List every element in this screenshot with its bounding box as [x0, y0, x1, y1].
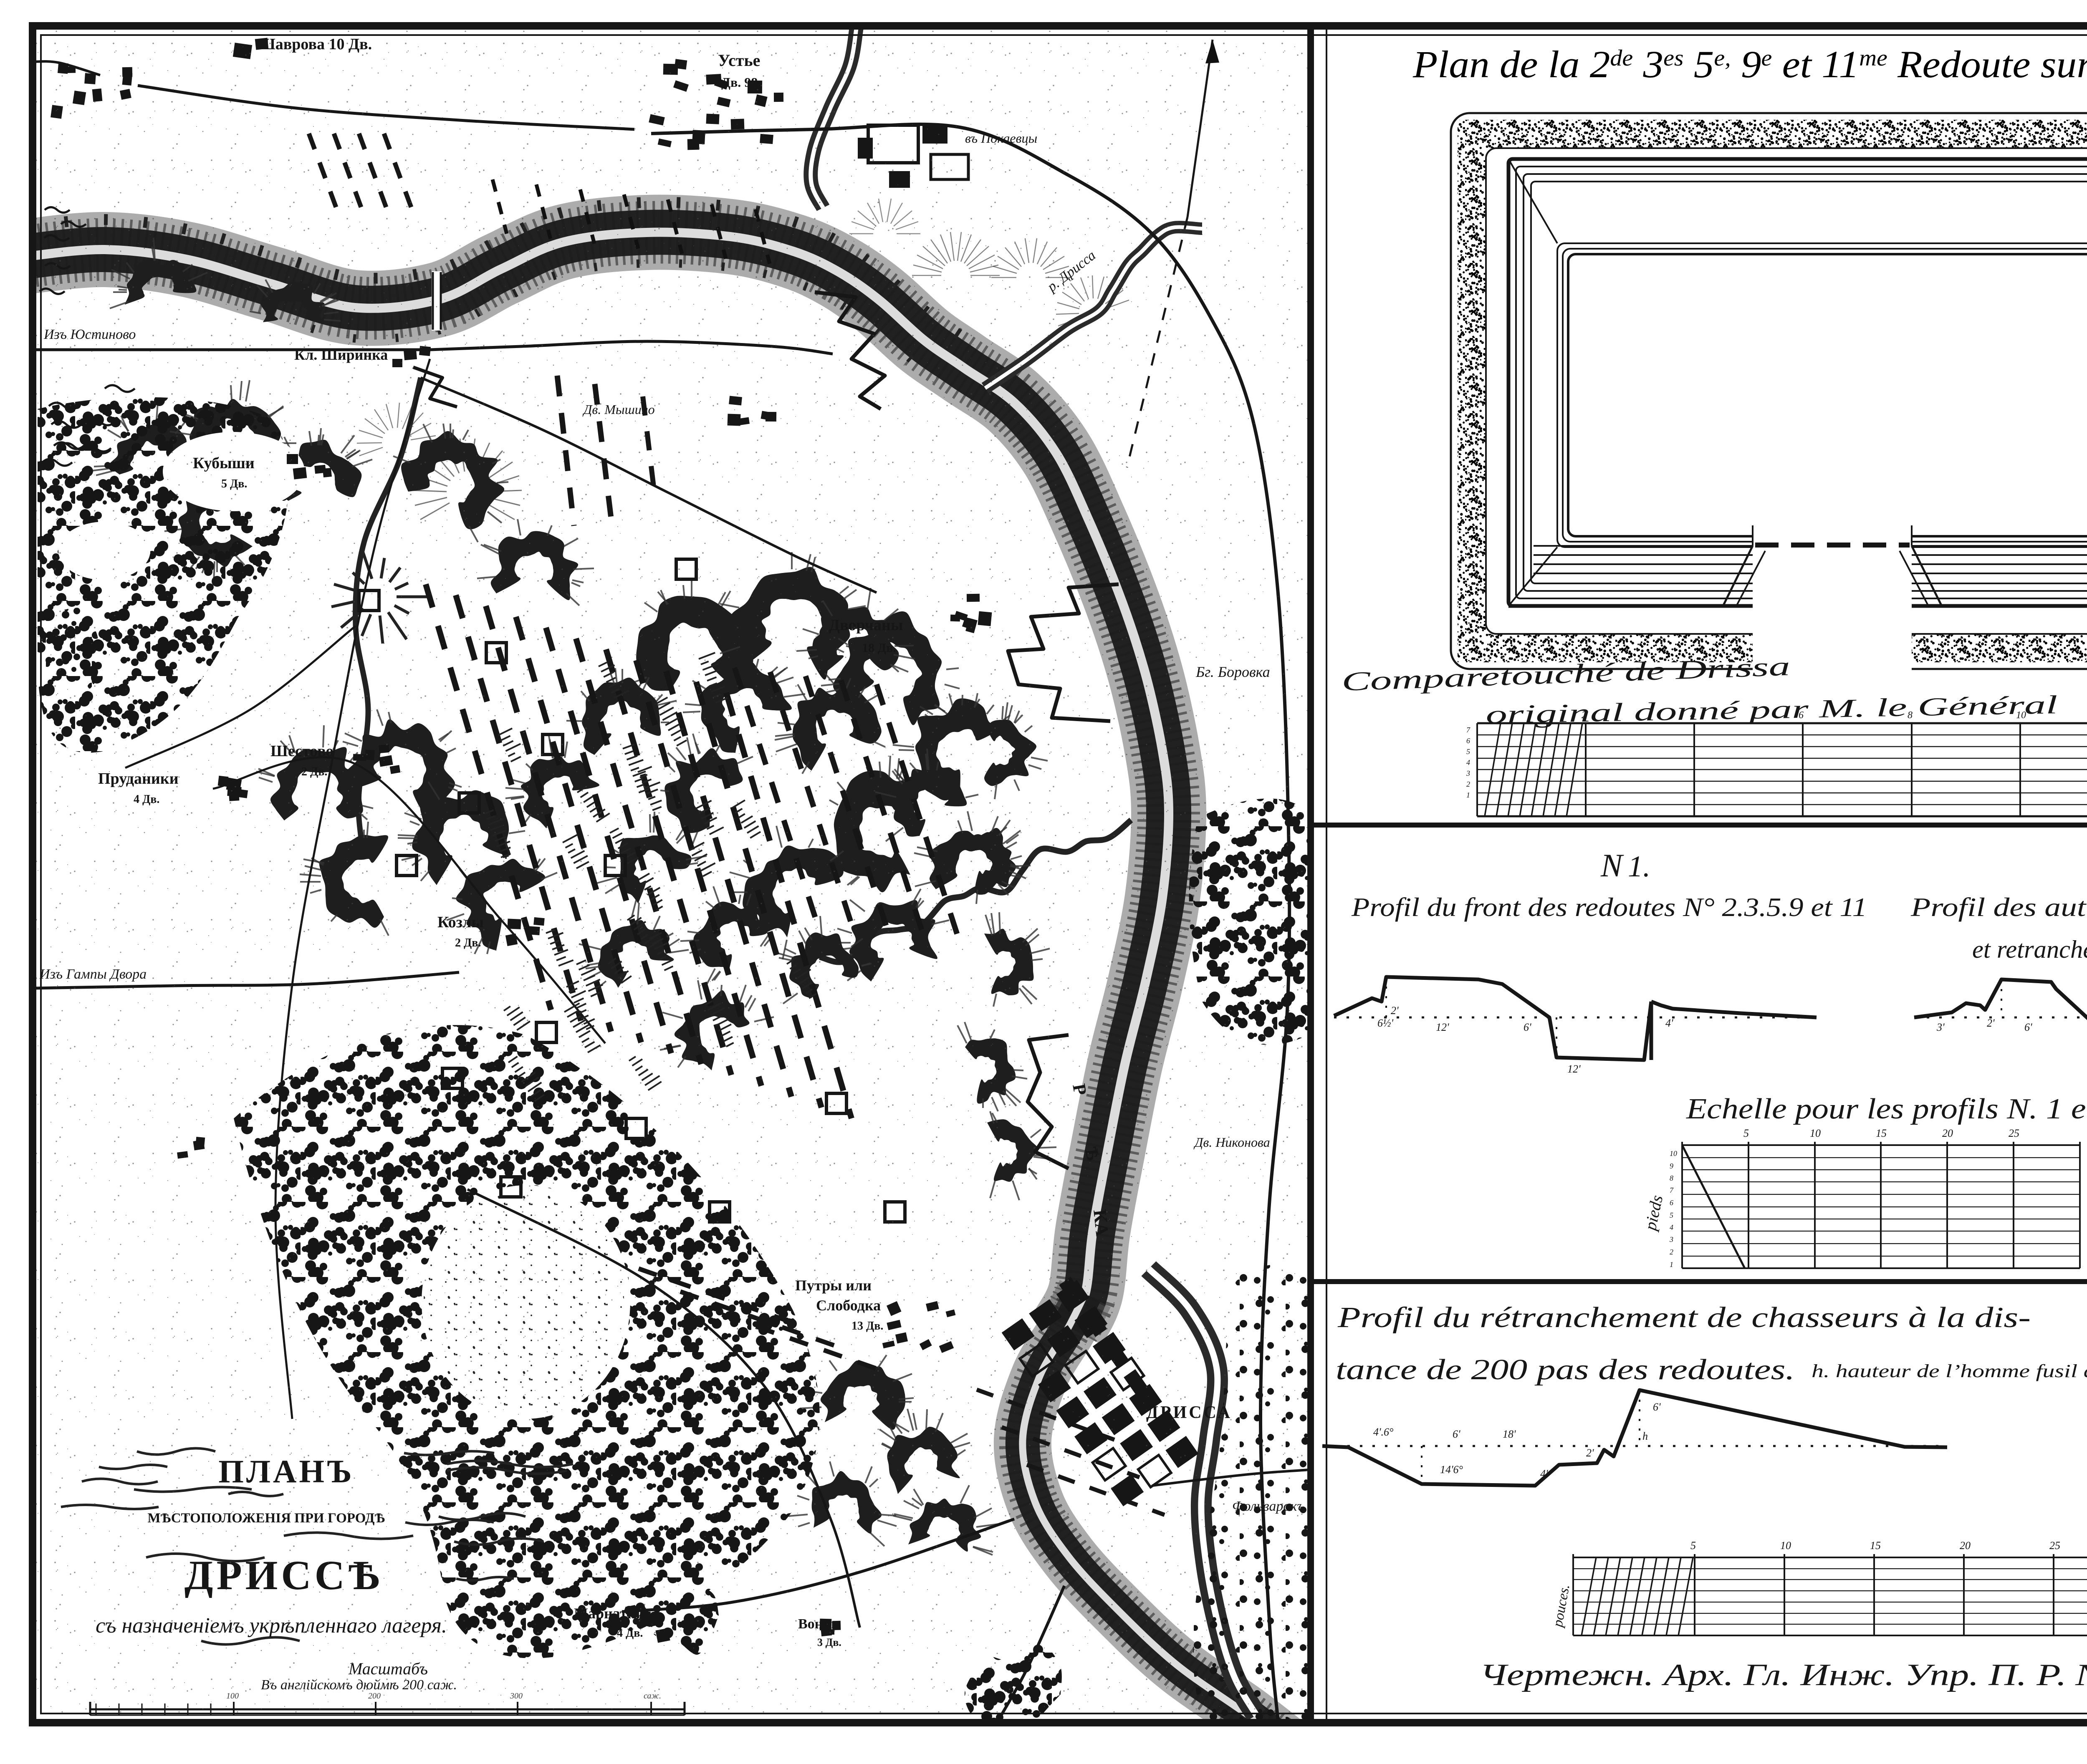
- svg-text:10: 10: [1670, 1149, 1677, 1158]
- svg-text:N: N: [1600, 847, 1624, 883]
- svg-text:2: 2: [1466, 780, 1470, 788]
- svg-text:7: 7: [1670, 1186, 1674, 1194]
- svg-text:2: 2: [1582, 710, 1587, 721]
- svg-text:6': 6': [1653, 1401, 1661, 1413]
- svg-text:3: 3: [1466, 769, 1470, 777]
- svg-text:Echelle pour les profils N. 1: Echelle pour les profils N. 1 et 2: [1686, 1093, 2087, 1125]
- svg-text:2': 2': [1987, 1017, 1995, 1029]
- svg-text:h. hauteur de l’homme fusil qu: h. hauteur de l’homme fusil quand l’homm…: [1812, 1361, 2087, 1381]
- svg-text:6: 6: [1466, 737, 1470, 745]
- svg-text:6½': 6½': [1377, 1017, 1394, 1029]
- svg-text:Profil du front des redoutes N: Profil du front des redoutes N° 2.3.5.9 …: [1351, 892, 1867, 922]
- svg-text:1: 1: [1670, 1260, 1673, 1269]
- svg-text:9: 9: [1670, 1162, 1673, 1170]
- svg-text:4: 4: [1690, 710, 1695, 721]
- svg-text:18': 18': [1503, 1428, 1516, 1440]
- svg-text:2': 2': [1391, 1004, 1399, 1017]
- svg-text:Plan de la 2de 3es 5e, 9e et 1: Plan de la 2de 3es 5e, 9e et 11me Redout…: [1412, 43, 2087, 86]
- svg-text:10: 10: [2016, 710, 2026, 721]
- svg-text:12': 12': [1436, 1021, 1449, 1033]
- svg-text:1.: 1.: [1628, 850, 1650, 883]
- svg-text:14'6°: 14'6°: [1440, 1464, 1463, 1476]
- svg-text:20: 20: [1960, 1539, 1971, 1552]
- svg-text:tance de 200 pas des redoutes.: tance de 200 pas des redoutes.: [1336, 1354, 1795, 1386]
- svg-text:6': 6': [1524, 1021, 1531, 1033]
- svg-text:10: 10: [1780, 1539, 1791, 1552]
- svg-text:4'.6°: 4'.6°: [1373, 1426, 1393, 1438]
- svg-text:4': 4': [1665, 1017, 1673, 1029]
- svg-text:4: 4: [1670, 1223, 1673, 1232]
- svg-text:Profil des autres redoutes: Profil des autres redoutes: [1910, 892, 2087, 922]
- svg-text:5: 5: [1466, 747, 1470, 756]
- svg-text:25: 25: [2049, 1539, 2060, 1552]
- svg-text:25: 25: [2009, 1127, 2019, 1139]
- svg-text:2': 2': [1586, 1447, 1594, 1459]
- svg-text:8: 8: [1670, 1174, 1673, 1182]
- svg-text:6': 6': [2024, 1021, 2032, 1033]
- svg-text:8: 8: [1908, 710, 1913, 721]
- svg-text:4': 4': [1540, 1468, 1548, 1480]
- svg-text:5: 5: [1670, 1211, 1673, 1219]
- svg-text:6: 6: [1799, 710, 1804, 721]
- svg-text:15: 15: [1876, 1127, 1887, 1139]
- svg-text:et retranchement: et retranchement: [1972, 936, 2087, 963]
- svg-text:1: 1: [1466, 791, 1470, 799]
- svg-text:10: 10: [1810, 1127, 1821, 1139]
- svg-text:5: 5: [1690, 1539, 1696, 1552]
- svg-text:4: 4: [1466, 758, 1470, 767]
- svg-text:15: 15: [1870, 1539, 1881, 1552]
- svg-text:Чертежн. Арх. Гл. Инж. Упр: Чертежн. Арх. Гл. Инж. Упр. П. Р. № 2800…: [1480, 1658, 2087, 1692]
- svg-text:h: h: [1642, 1430, 1648, 1442]
- svg-text:2: 2: [1670, 1248, 1673, 1256]
- svg-text:3': 3': [1936, 1021, 1945, 1033]
- svg-text:12': 12': [1567, 1063, 1581, 1075]
- svg-text:6: 6: [1670, 1199, 1673, 1207]
- svg-text:Profil du rétranchement de cha: Profil du rétranchement de chasseurs à l…: [1337, 1302, 2031, 1334]
- svg-text:6': 6': [1453, 1428, 1460, 1440]
- svg-text:7: 7: [1466, 726, 1471, 734]
- svg-text:20: 20: [1942, 1127, 1953, 1139]
- svg-text:5: 5: [1743, 1127, 1749, 1139]
- svg-text:3: 3: [1669, 1235, 1673, 1244]
